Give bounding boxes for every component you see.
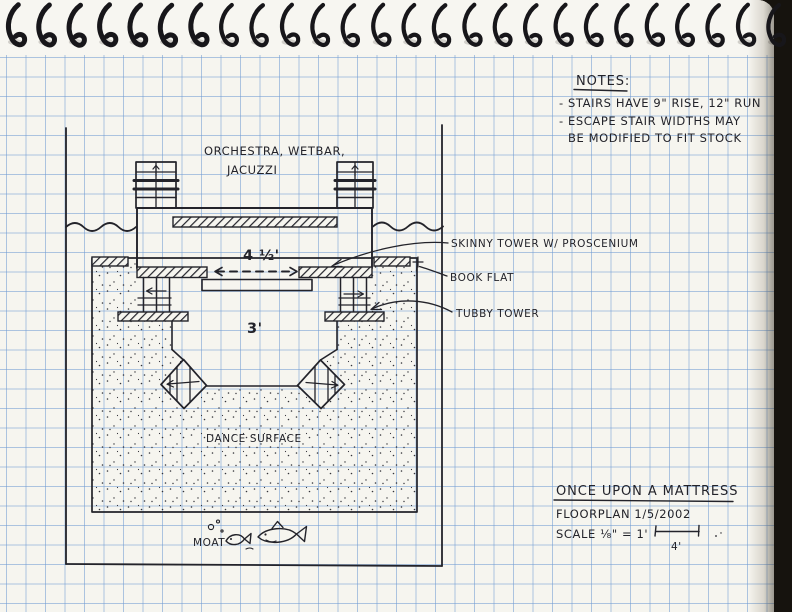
curtain-wavy-line-left: [66, 223, 136, 231]
title-block: ONCE UPON A MATTRESS FLOORPLAN 1/5/2002 …: [556, 484, 738, 553]
spiral-binding: [0, 0, 792, 58]
label-jacuzzi: JACUZZI: [226, 163, 277, 177]
note-line: BE MODIFIED TO FIT STOCK: [568, 131, 742, 145]
spiral-coil: [39, 5, 55, 45]
spiral-coil: [281, 5, 298, 46]
right-stair-tower: [335, 162, 375, 208]
title-underline: [554, 500, 733, 502]
notes-heading: NOTES:: [576, 74, 630, 89]
dimension-upper-platform: 4 ½': [243, 248, 280, 264]
proscenium-opening-dashed-line: [215, 268, 297, 276]
label-dance-surface: DANCE SURFACE: [206, 433, 302, 445]
spiral-coil: [8, 5, 25, 46]
spiral-coil: [464, 5, 481, 46]
scale-bar: [655, 526, 722, 537]
dimension-lower-platform: 3': [247, 321, 263, 337]
spiral-coil: [586, 5, 602, 45]
label-moat: MOAT: [193, 537, 225, 549]
proscenium-wall-left-hatched: [137, 267, 207, 278]
show-title: ONCE UPON A MATTRESS: [556, 484, 738, 499]
spiral-coil: [495, 5, 511, 45]
spiral-coil: [677, 5, 693, 45]
scanned-notebook: { "notes": { "heading": "NOTES:", "lines…: [0, 0, 792, 612]
spiral-coil: [555, 5, 572, 46]
spiral-coil: [221, 5, 237, 45]
spiral-coil: [372, 5, 389, 46]
spiral-coil: [768, 5, 784, 45]
lower-landing-left-hatched: [118, 312, 188, 321]
note-line: - ESCAPE STAIR WIDTHS MAY: [559, 114, 741, 128]
down-right-arrow-icon: [306, 382, 338, 389]
book-flat-unit: [202, 280, 312, 291]
outer-wall-left-hatched: [92, 257, 128, 266]
label-tubby-tower: TUBBY TOWER: [455, 308, 539, 320]
proscenium-wall-right-hatched: [299, 267, 372, 278]
lower-landing-right-hatched: [325, 312, 384, 321]
label-skinny-tower: SKINNY TOWER W/ PROSCENIUM: [451, 238, 639, 250]
scale-bar-label: 4': [671, 541, 682, 553]
upstage-wall-hatched: [173, 217, 337, 227]
spiral-coil: [130, 5, 146, 45]
dance-surface-area: [92, 257, 423, 512]
label-orchestra: ORCHESTRA, WETBAR,: [204, 144, 345, 158]
outer-wall-right-hatched: [374, 257, 410, 266]
spiral-coil: [190, 5, 207, 46]
notes-block: NOTES: - STAIRS HAVE 9" RISE, 12" RUN - …: [559, 74, 761, 145]
spiral-coil: [404, 5, 420, 45]
label-book-flat: BOOK FLAT: [450, 272, 514, 284]
drawing-scale: SCALE ⅛" = 1': [556, 527, 648, 541]
spiral-coil: [737, 5, 754, 46]
up-arrow-icon: [153, 166, 159, 177]
drawing-name-date: FLOORPLAN 1/5/2002: [556, 507, 691, 521]
spiral-coil: [646, 5, 663, 46]
curtain-wavy-line-right: [373, 223, 443, 231]
up-arrow-icon: [352, 166, 358, 177]
spiral-coil: [99, 5, 116, 46]
floorplan-sketch: NOTES: - STAIRS HAVE 9" RISE, 12" RUN - …: [0, 0, 792, 612]
down-left-arrow-icon: [167, 381, 199, 388]
left-stair-tower: [134, 162, 178, 208]
note-line: - STAIRS HAVE 9" RISE, 12" RUN: [559, 96, 761, 110]
notes-underline: [574, 90, 627, 92]
spiral-coil: [312, 5, 328, 45]
